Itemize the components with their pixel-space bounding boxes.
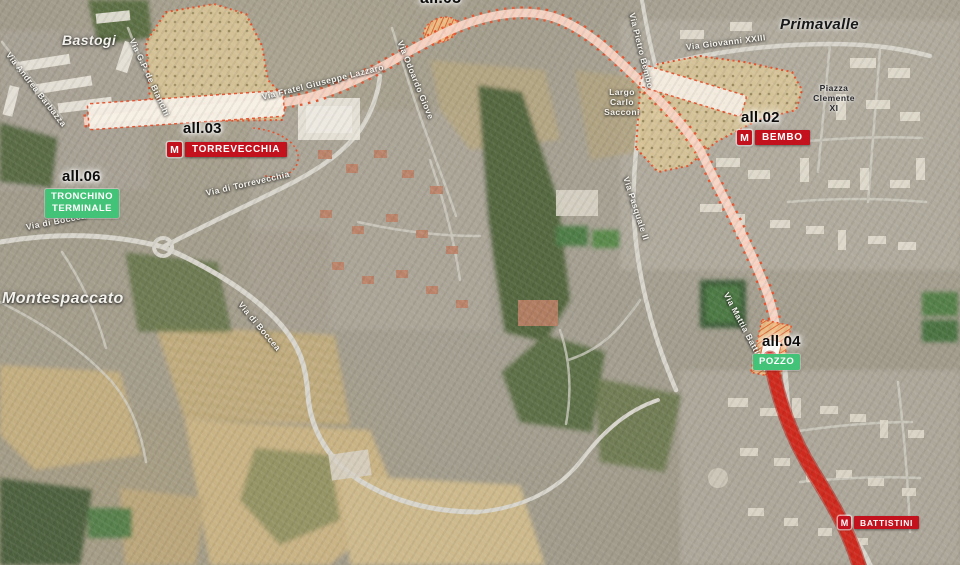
metro-logo-icon: M [838, 516, 851, 529]
station-badge-bembo: M BEMBO [737, 130, 810, 145]
street-label-piazza-clemente-xi: Piazza Clemente XI [806, 84, 862, 113]
callout-id-all03: all.03 [183, 120, 222, 137]
site-badge-tronchino-terminale: TRONCHINO TERMINALE [45, 189, 119, 218]
site-badge-pozzo: POZZO [753, 354, 800, 370]
station-name-torrevecchia: TORREVECCHIA [185, 142, 287, 157]
metro-logo-icon: M [167, 142, 182, 157]
metro-logo-icon: M [737, 130, 752, 145]
station-name-bembo: BEMBO [755, 130, 810, 145]
piazza-clemente-line3: XI [806, 104, 862, 114]
region-label-primavalle: Primavalle [780, 16, 859, 33]
satellite-map: Bastogi Primavalle Montespaccato Via And… [0, 0, 960, 565]
station-badge-torrevecchia: M TORREVECCHIA [167, 142, 287, 157]
callout-id-all05: all.05 [420, 0, 461, 8]
street-label-largo-carlo-sacconi: Largo Carlo Sacconi [596, 88, 648, 117]
region-label-bastogi: Bastogi [62, 32, 116, 48]
callout-id-all06: all.06 [62, 168, 101, 185]
station-badge-battistini: M BATTISTINI [838, 516, 919, 529]
callout-id-all02: all.02 [741, 109, 780, 126]
tronchino-line1: TRONCHINO [51, 191, 113, 203]
region-label-montespaccato: Montespaccato [2, 290, 124, 308]
largo-carlo-line3: Sacconi [596, 108, 648, 118]
callout-id-all04: all.04 [762, 333, 801, 350]
tronchino-line2: TERMINALE [51, 203, 113, 215]
station-name-battistini: BATTISTINI [854, 516, 919, 529]
